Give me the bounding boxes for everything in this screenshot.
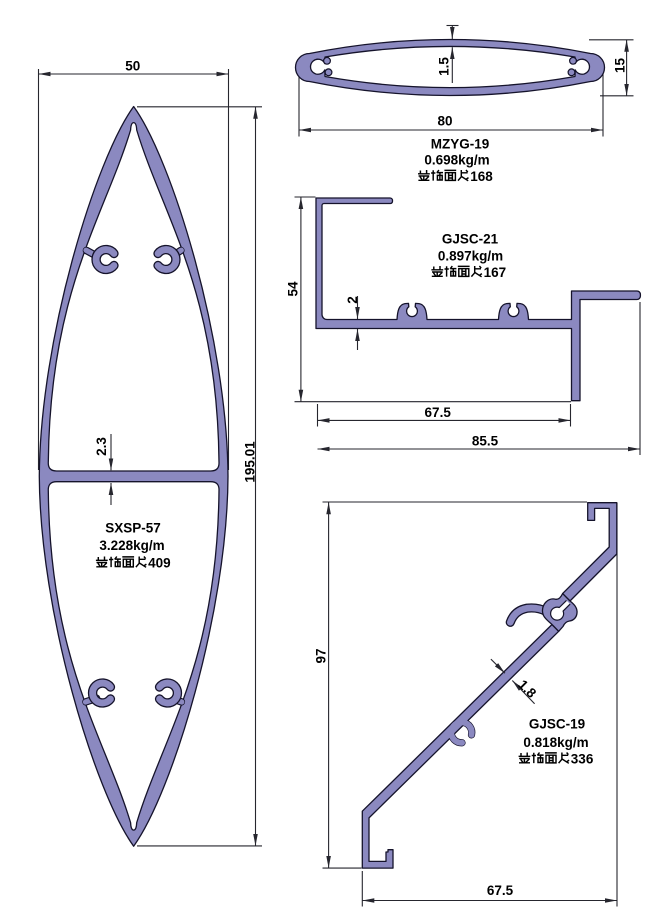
svg-text:336: 336: [571, 752, 594, 767]
svg-text:2: 2: [345, 296, 360, 304]
svg-text:MZYG-19: MZYG-19: [431, 137, 490, 152]
svg-text:GJSC-19: GJSC-19: [529, 717, 585, 732]
svg-text:168: 168: [470, 169, 493, 184]
svg-text:3.228kg/m: 3.228kg/m: [99, 538, 164, 553]
svg-text:97: 97: [314, 648, 329, 663]
svg-text:50: 50: [125, 59, 140, 74]
svg-text:GJSC-21: GJSC-21: [442, 232, 499, 247]
svg-text:409: 409: [148, 556, 171, 571]
svg-text:SXSP-57: SXSP-57: [105, 521, 161, 536]
svg-text:80: 80: [437, 114, 452, 129]
svg-text:15: 15: [613, 58, 628, 74]
svg-text:1.5: 1.5: [436, 57, 451, 76]
svg-text:0.698kg/m: 0.698kg/m: [424, 153, 489, 168]
svg-text:195.01: 195.01: [243, 441, 258, 483]
svg-text:67.5: 67.5: [487, 883, 514, 898]
svg-text:0.818kg/m: 0.818kg/m: [523, 735, 588, 750]
svg-text:85.5: 85.5: [472, 434, 499, 449]
svg-text:167: 167: [484, 265, 507, 280]
svg-text:0.897kg/m: 0.897kg/m: [438, 249, 503, 264]
svg-text:67.5: 67.5: [425, 405, 452, 420]
svg-text:54: 54: [286, 281, 301, 297]
svg-text:2.3: 2.3: [94, 437, 109, 456]
